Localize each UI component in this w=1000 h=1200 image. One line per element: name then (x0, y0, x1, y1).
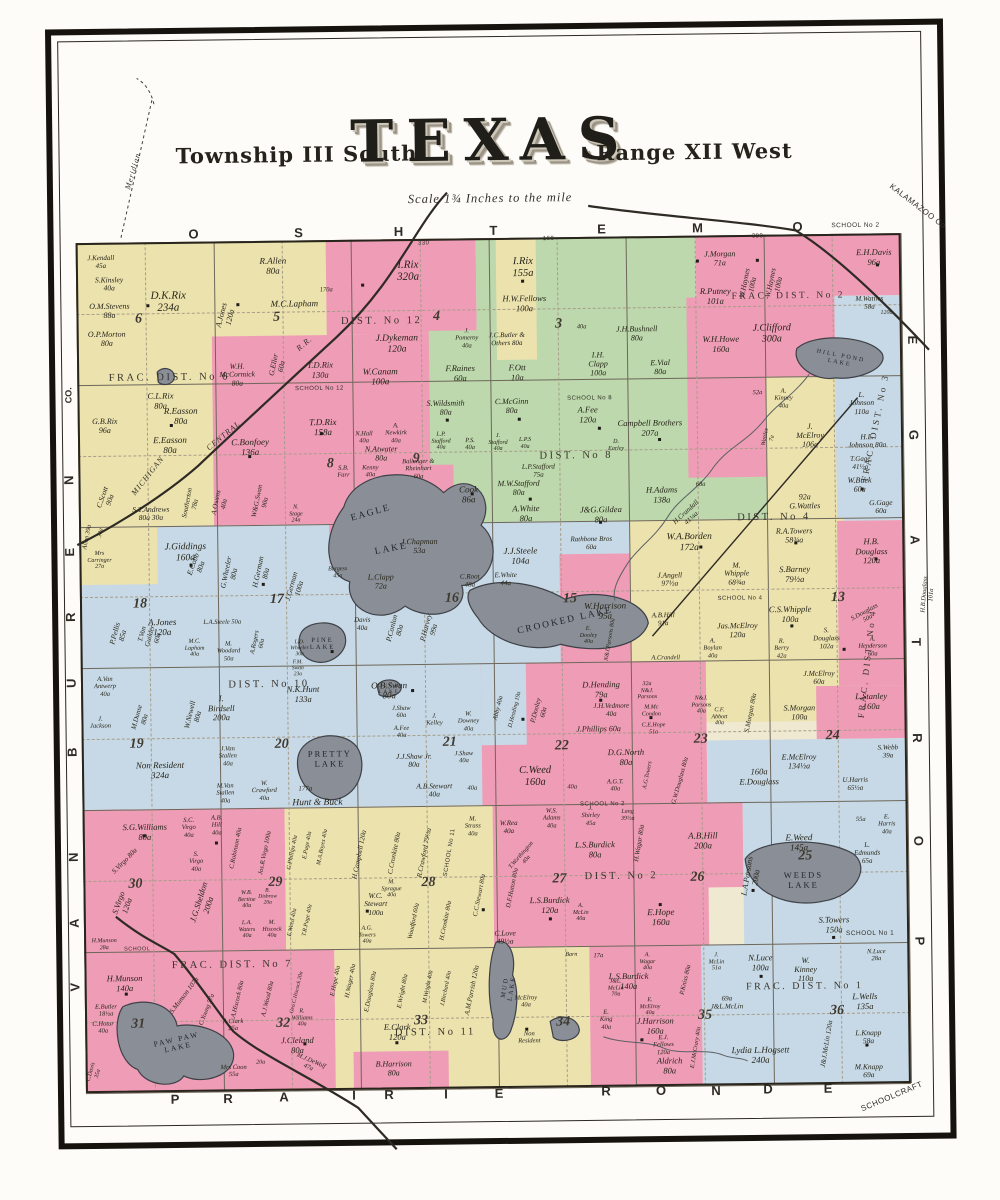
parcel-label: R. Berry 42a (774, 638, 789, 660)
parcel-label: A. Wagar 40a (639, 952, 655, 972)
house-dot (598, 427, 601, 430)
parcel-label: A.Clark 25a (223, 1018, 244, 1033)
parcel-label: C.F. Abbott 40a (711, 707, 727, 727)
house-dot (760, 975, 763, 978)
parcel-label: S.Towers 150a (819, 915, 850, 934)
house-dot (411, 689, 414, 692)
parcel-label: H.Munson 28a (92, 938, 117, 952)
parcel-label: C.Root 48a (460, 573, 480, 589)
lake-label: WEEDS LAKE (784, 871, 824, 891)
parcel-label: A.Fee 120a (578, 405, 598, 424)
parcel-label: E.Hope 160a (647, 907, 674, 927)
section-number: 24 (826, 728, 840, 744)
parcel-label: E.McElroy 134½a (782, 753, 817, 771)
parcel-label: 20a (256, 1060, 265, 1067)
parcel-label: Rathbone Bros 60a (570, 536, 612, 552)
parcel-label: E.White 44a (494, 572, 517, 588)
parcel-label: J.Shaw 60a (392, 705, 411, 720)
school-label: SCHOOL No 2 (831, 222, 879, 230)
parcel-label: N.K.Hunt 133a (287, 685, 320, 704)
parcel-label: Kenny 40a (362, 464, 379, 479)
school-label: SCHOOL No 8 (567, 395, 612, 402)
parcel-label: J.J.Shaw Jr. 80a (396, 752, 432, 769)
section-number: 6 (135, 312, 142, 328)
parcel-label: Lang 39½a (621, 809, 635, 823)
parcel-label: E.Butler 18½a (95, 1003, 117, 1018)
parcel-label: W.A.Borden 172a (667, 532, 712, 554)
house-dot (529, 498, 532, 501)
parcel-label: D.Hending 79a (582, 680, 620, 699)
parcel-label: O.P.Morton 80a (88, 331, 126, 349)
house-dot (696, 260, 699, 263)
parcel-label: O.M.Stevens 88a (89, 303, 130, 321)
parcel-label: W.Harrison 95a (584, 600, 626, 621)
parcel-label: M.C. Lapham 40a (185, 639, 205, 659)
house-dot (790, 624, 793, 627)
adjacent-township-letter: T (908, 638, 923, 646)
parcel-label: F.Ott 10a (509, 363, 526, 382)
parcel-label: S.T.Andrews 80a 30a (132, 506, 169, 523)
house-dot (146, 304, 149, 307)
parcel-label: L.P.S 40a (519, 437, 531, 451)
parcel-label: E. King 40a (600, 1009, 613, 1031)
adjacent-township-letter: O (656, 1084, 666, 1099)
school-label: SCHOOL No 1 (846, 930, 894, 938)
parcel-label: 40a (467, 785, 477, 792)
adjacent-township-letter: A (907, 535, 922, 545)
parcel-label: J.H.Vedmore 40a (593, 703, 629, 719)
parcel-label: I.H. Clapp 100a (588, 351, 608, 378)
section-number: 27 (552, 871, 566, 887)
parcel-label: O.B.Swan 80a (371, 680, 407, 701)
parcel-label: A.Van Antwerp 40a (94, 676, 116, 698)
parcel-label: H.B. Douglass 120a (855, 537, 887, 566)
parcel-label: Davis 40a (354, 617, 371, 633)
parcel-label: 32a N&J. Parsons (637, 681, 657, 701)
parcel-label: N&J. Parsons 40a (691, 695, 711, 715)
parcel-label: D. Earley (608, 439, 624, 453)
parcel-label: L. Edmunds 65a (854, 842, 880, 866)
adjacent-township-letter: CO. (63, 387, 73, 403)
parcel-label: C.Hotur 40a (92, 1020, 114, 1035)
adjacent-township-letter: P (171, 1093, 180, 1108)
parcel-label: H.Adams 138a (646, 485, 678, 504)
adjacent-township-letter: E (824, 1082, 833, 1097)
parcel-label: Jas.McElroy 120a (717, 622, 758, 640)
lake-label: PRETTY LAKE (308, 749, 352, 769)
parcel-label: M.Wattles 58a (855, 295, 883, 311)
parcel-label: J.Clifford 300a (753, 322, 792, 345)
parcel-label: Cook 86a (459, 484, 478, 504)
parcel-label: E.Weed 145a (785, 832, 812, 852)
parcel-label: C.Love 49½a (494, 929, 516, 946)
parcel-label: B.Harrison 80a (376, 1060, 412, 1078)
parcel-label: N.Luce 100a (748, 953, 773, 972)
parcel-label: F.Raines 60a (445, 364, 475, 383)
parcel-label: 55a (856, 816, 866, 823)
parcel-label: E.J. Fellows 120a (653, 1034, 674, 1056)
parcel-label: C.E.Hope 51a (642, 722, 666, 736)
parcel-label: L.D. Wheeler 30a (290, 639, 309, 658)
adjacent-township-letter: V (68, 983, 83, 992)
parcel-label: W. Kinney 110a (794, 957, 817, 984)
parcel-label: R.A.Towers 58¾a (776, 527, 813, 545)
parcel-label: B. Disbrow 20a (258, 888, 277, 907)
parcel-label: W.C. Stewart 100a (364, 892, 387, 917)
adjacent-township-letter: G (906, 430, 921, 440)
parcel-label: M.W.Stafford 80a (497, 480, 539, 498)
parcel-label: Mrs Coon 55a (221, 1064, 247, 1079)
parcel-label: P.S. 40a (465, 437, 475, 452)
parcel-label: J.C.Butler & Others 80a (489, 332, 525, 348)
section-number: 22 (555, 738, 569, 754)
parcel-label: L.P. Stafford 40a (431, 432, 450, 452)
parcel-label: Lydia L.Hogsett 240a (732, 1044, 790, 1065)
parcel-label: E.H.Davis 96a (856, 248, 892, 267)
parcel-label: S.Kinsley 40a (95, 276, 123, 293)
section-number: 16 (445, 591, 459, 607)
parcel-label: Campbell Brothers 207a (617, 418, 682, 438)
adjacent-township-letter: R (223, 1092, 233, 1107)
parcel-label: E.Vial 80a (650, 359, 670, 377)
parcel-label: N.Hall 40a (355, 430, 373, 445)
parcel-label: D.K.Rix 234a (150, 290, 186, 315)
parcel-label: McElroy 40a (515, 994, 538, 1009)
district-label: DIST. No 8 (539, 450, 613, 463)
parcel-label: J&L. McLin 70a (608, 978, 624, 998)
parcel-label: W.H. McCormick 80a (219, 362, 255, 388)
parcel-label: E.Clark 120a (384, 1023, 411, 1042)
adjacent-township-letter: E (597, 222, 606, 237)
adjacent-township-letter: R (601, 1084, 611, 1099)
adjacent-township-letter: O (792, 220, 802, 235)
parcel-label: E. Harris 40a (878, 813, 896, 835)
parcel-label: E. McElroy 40a (639, 997, 660, 1017)
parcel-label: W.B. Bertine 40a (238, 890, 256, 910)
parcel-label: S. Douglass 102a (813, 627, 840, 651)
section-number: 17 (270, 592, 284, 608)
map-sheet: Township III South TEXAS Range XII West … (0, 0, 1000, 1200)
district-label: DIST. No 4 (737, 511, 811, 524)
parcel-label: A.B.Hill 200a (688, 830, 718, 851)
parcel-label: S.Barney 79½a (779, 565, 810, 584)
parcel-label: C.Bonfoey 136a (231, 437, 269, 458)
parcel-label: S.C. Virgo 40a (182, 817, 196, 839)
section-number: 36 (830, 1003, 844, 1019)
parcel-label: L.Wells 135a (852, 992, 877, 1011)
parcel-label: A.Crandell (651, 654, 680, 662)
parcel-label: E.Easson 80a (153, 435, 187, 456)
house-dot (756, 259, 759, 262)
parcel-label: J.Van Stallen 40a (219, 745, 237, 767)
section-number: 8 (327, 456, 334, 472)
parcel-label: 177a (298, 785, 312, 793)
parcel-label: J.Kendall 45a (87, 255, 114, 271)
house-dot (832, 936, 835, 939)
parcel-label: I.Rix 320a (397, 259, 419, 284)
parcel-label: 170a (320, 286, 333, 293)
parcel-label: L.Stanley 160a (855, 692, 887, 711)
parcel-label: Ballenger & Rheinhart 60a (402, 458, 435, 480)
section-number: 15 (563, 591, 577, 607)
parcel-label: M.C.Lapham (271, 298, 319, 309)
section-number: 30 (128, 877, 142, 893)
parcel-label: J.Shaw 40a (455, 750, 474, 765)
parcel-label: J. Jackson (90, 715, 111, 730)
parcel-label: M. Strass 40a (465, 815, 481, 837)
parcel-label: J.Dykeman 120a (376, 333, 419, 355)
parcel-label: J.Harrison 160a (637, 1016, 674, 1035)
parcel-label: Non Resident (518, 1030, 541, 1045)
parcel-label: L.P.Stafford 75a (522, 463, 555, 479)
school-label: 330 (418, 240, 430, 247)
parcel-label: F.M. Swan 23a (292, 659, 304, 678)
section-number: 5 (273, 310, 280, 326)
parcel-label: N.Luce 28a (867, 948, 886, 963)
parcel-label: L.S.Burdick 80a (575, 840, 615, 860)
parcel-label: H.W.Fellows 100a (502, 294, 546, 314)
parcel-label: 69a J&L.McLin (711, 995, 744, 1011)
parcel-label: H.B.Douglass 101a (919, 576, 936, 613)
parcel-label: 92a G.Wattles (789, 493, 820, 511)
parcel-label: W.Canam 100a (363, 366, 398, 387)
parcel-label: S.Webb 39a (878, 744, 899, 760)
parcel-label: S.G.Williams 80a (122, 823, 167, 843)
section-number: 4 (433, 309, 440, 325)
adjacent-township-letter: A (68, 918, 83, 928)
parcel-label: H.Munson 140a (107, 974, 143, 993)
adjacent-township-letter: A (279, 1090, 289, 1105)
house-dot (446, 419, 449, 422)
parcel-label: C.S.Whipple 100a (769, 605, 812, 625)
map-labels: OSHTEMOPRAIRIERONDENERUBNAVCO.EGATROPKAL… (0, 0, 993, 6)
school-label: SCHOOL No 12 (295, 386, 344, 393)
parcel-label: A.Fee 40a (394, 725, 410, 740)
parcel-label: J&G.Gildea 80a (580, 505, 622, 525)
section-number: 34 (556, 1014, 570, 1030)
section-number: 32 (276, 1016, 290, 1032)
district-label: FRAC. DIST. No 7 (172, 959, 293, 972)
school-label: SCHOOL No 4 (717, 595, 762, 602)
map-title: TEXAS (350, 104, 633, 175)
adjacent-township-letter: O (911, 836, 926, 846)
parcel-label: A.G. Towers 40a (358, 925, 375, 945)
school-label: 380 (752, 233, 764, 240)
parcel-label: J.Chapman 53a (401, 538, 438, 556)
adjacent-township-letter: E (905, 336, 920, 345)
parcel-label: J. Shirley 45a (581, 805, 600, 827)
house-dot (521, 280, 524, 283)
parcel-label: S.B. Farr (337, 465, 349, 480)
parcel-label: H.L. Johnson 80a (848, 433, 886, 450)
parcel-label: J. Pomeroy 40a (455, 327, 478, 349)
adjacent-township-letter: O (188, 227, 198, 242)
adjacent-township-letter: B (65, 747, 80, 757)
adjacent-township-letter: R (64, 612, 79, 622)
parcel-label: A.G.T. 40a (607, 778, 624, 793)
adjacent-township-letter: S (294, 226, 303, 241)
parcel-label: S. Virgo 40a (189, 851, 203, 873)
parcel-label: G.Gage 60a (869, 499, 893, 516)
adjacent-township-letter: I (352, 1089, 356, 1104)
parcel-label: N.Atwater 80a (365, 445, 398, 463)
parcel-label: S.Morgan 100a (784, 704, 816, 722)
parcel-label: W. Downey 40a (458, 710, 480, 732)
parcel-label: L.A.Steele 50a (203, 619, 241, 627)
parcel-label: Mrs Carringer 27a (87, 551, 112, 571)
house-dot (549, 917, 552, 920)
district-label: DIST. No 12 (341, 315, 422, 328)
parcel-label: 17a (593, 952, 603, 959)
parcel-label: J. McElroy 106a (796, 423, 824, 450)
parcel-label: 40a (577, 323, 587, 330)
township-plat (0, 0, 993, 6)
parcel-label: M. Hiscock 40a (262, 920, 282, 940)
parcel-label: A.B.Hill 91a (652, 612, 675, 628)
parcel-label: R.Putney 101a (700, 287, 731, 306)
section-number: 23 (694, 732, 708, 748)
adjacent-township-letter: U (65, 678, 80, 688)
parcel-label: J.McElroy 60a (803, 670, 834, 687)
parcel-label: G.B.Rix 96a (92, 418, 118, 436)
parcel-label: A. Boylan 40a (703, 637, 722, 659)
section-number: 18 (133, 596, 147, 612)
parcel-label: 40a (567, 783, 577, 790)
adjacent-township-letter: D (763, 1082, 773, 1097)
parcel-label: L.S.Burdick 120a (530, 896, 570, 916)
adjacent-township-letter: P (912, 936, 927, 945)
house-dot (518, 418, 521, 421)
parcel-label: M. Whipple 68¾a (724, 561, 749, 586)
parcel-label: W.Rea 40a (500, 820, 518, 836)
title-range: Range XII West (596, 138, 792, 165)
school-label: 160 (543, 236, 555, 243)
adjacent-township-letter: N (67, 852, 82, 862)
district-label: DIST. No 2 (585, 870, 659, 883)
section-number: 13 (831, 590, 845, 606)
parcel-label: C.Weed 160a (519, 765, 551, 789)
adjacent-township-letter: R (384, 1088, 394, 1103)
parcel-label: C.McGinn 80a (495, 398, 529, 416)
parcel-label: Non Resident 324a (136, 760, 184, 781)
parcel-label: A.B.Stewart 40a (416, 782, 452, 799)
parcel-label: I. Birdsell 200a (208, 694, 235, 723)
adjacent-township-letter: I (444, 1087, 448, 1102)
house-dot (658, 438, 661, 441)
parcel-label: S.Wildsmith 80a (427, 399, 465, 417)
parcel-label: J.J.Steele 104a (503, 545, 537, 566)
plat-map-page: Township III South TEXAS Range XII West … (0, 0, 1000, 1200)
parcel-label: J. Kelley (426, 712, 443, 727)
adjacent-township-letter: N (62, 475, 77, 485)
adjacent-township-letter: R (909, 733, 924, 743)
parcel-label: R.Easson 80a (164, 406, 198, 427)
parcel-label: 120a (880, 310, 892, 317)
parcel-label: R. Williams 40a (291, 1008, 312, 1028)
scale-note: Scale 1¾ Inches to the mile (408, 188, 573, 208)
parcel-label: I.Rix 155a (512, 256, 533, 280)
section-number: 31 (131, 1017, 145, 1033)
parcel-label: Barn (565, 952, 577, 959)
house-dot (361, 284, 364, 287)
parcel-label: R.Allen 80a (259, 256, 286, 276)
parcel-label: W.H.Howe 160a (703, 335, 740, 354)
district-label: FRAC. DIST. No 6 (109, 371, 230, 384)
parcel-label: Aldrich 80a (657, 1056, 683, 1075)
adjacent-township-letter: E (495, 1087, 504, 1102)
parcel-label: A. Kinney 40a (774, 388, 793, 410)
parcel-label: W.Buck 60a (848, 476, 872, 494)
parcel-label: A.White 80a (512, 504, 539, 523)
parcel-label: Burgess 45a (328, 566, 347, 580)
section-number: 21 (443, 735, 457, 751)
parcel-label: T.Gage 41½a (850, 456, 870, 472)
parcel-label: T.D.Rix 158a (309, 417, 337, 437)
parcel-label: L. Johnson 110a (849, 391, 874, 416)
parcel-label: U.Harris 65½a (842, 777, 868, 793)
section-number: 19 (130, 737, 144, 753)
school-label: SCHOOL (124, 946, 150, 952)
adjacent-township-letter: E (63, 548, 78, 557)
parcel-label: T.D.Rix 130a (307, 361, 333, 380)
section-number: 26 (690, 870, 704, 886)
parcel-label: M.Van Stallen 40a (216, 782, 234, 804)
adjacent-township-letter: M (692, 221, 703, 236)
house-dot (482, 908, 485, 911)
parcel-label: N. Stage 24a (289, 504, 303, 524)
adjacent-township-letter: H (394, 225, 404, 240)
parcel-label: J.Phillips 60a (576, 725, 621, 734)
house-dot (640, 1038, 643, 1041)
parcel-label: J.Morgan 71a (704, 250, 735, 268)
house-dot (843, 648, 846, 651)
parcel-label: M.Mc Condon (642, 704, 661, 718)
parcel-label: A. Henderson 60a (858, 635, 887, 657)
section-number: 20 (275, 737, 289, 753)
parcel-label: A.B. Hill 40a (211, 815, 222, 837)
parcel-label: W.S. Adams 40a (543, 807, 561, 829)
parcel-label: E. Dooley 40a (580, 626, 598, 646)
parcel-label: L.A. Waters 40a (239, 920, 256, 940)
adjacent-township-letter: T (489, 224, 497, 239)
parcel-label: 68a (696, 481, 706, 488)
parcel-label: J.H.Bushnell 80a (616, 325, 658, 343)
parcel-label: A. Newkirk 40a (385, 422, 407, 444)
lake-label: PINE LAKE (310, 637, 336, 652)
parcel-label: J. Stafford 40a (488, 433, 507, 453)
parcel-label: 52a (753, 389, 763, 396)
parcel-label: L.Clapp 72a (368, 573, 394, 591)
house-dot (521, 718, 524, 721)
parcel-label: D.G.North 80a (608, 748, 645, 767)
parcel-label: A. McLin 40a (573, 903, 589, 923)
adjacent-township-letter: N (711, 1084, 721, 1099)
parcel-label: J.Angell 97½a (657, 571, 682, 588)
parcel-label: 160a E.Douglass (739, 767, 779, 787)
house-dot (215, 841, 218, 844)
section-number: 3 (555, 316, 562, 332)
house-dot (659, 903, 662, 906)
parcel-label: L.Knapp 58a (855, 1029, 881, 1046)
parcel-label: W. Crawford 40a (252, 780, 277, 802)
parcel-label: M.Knapp 69a (855, 1063, 883, 1080)
parcel-label: M. Woodard 50a (217, 640, 241, 662)
parcel-label: Hunt & Buck (292, 798, 342, 809)
parcel-label: J. McLin 51a (708, 952, 724, 972)
